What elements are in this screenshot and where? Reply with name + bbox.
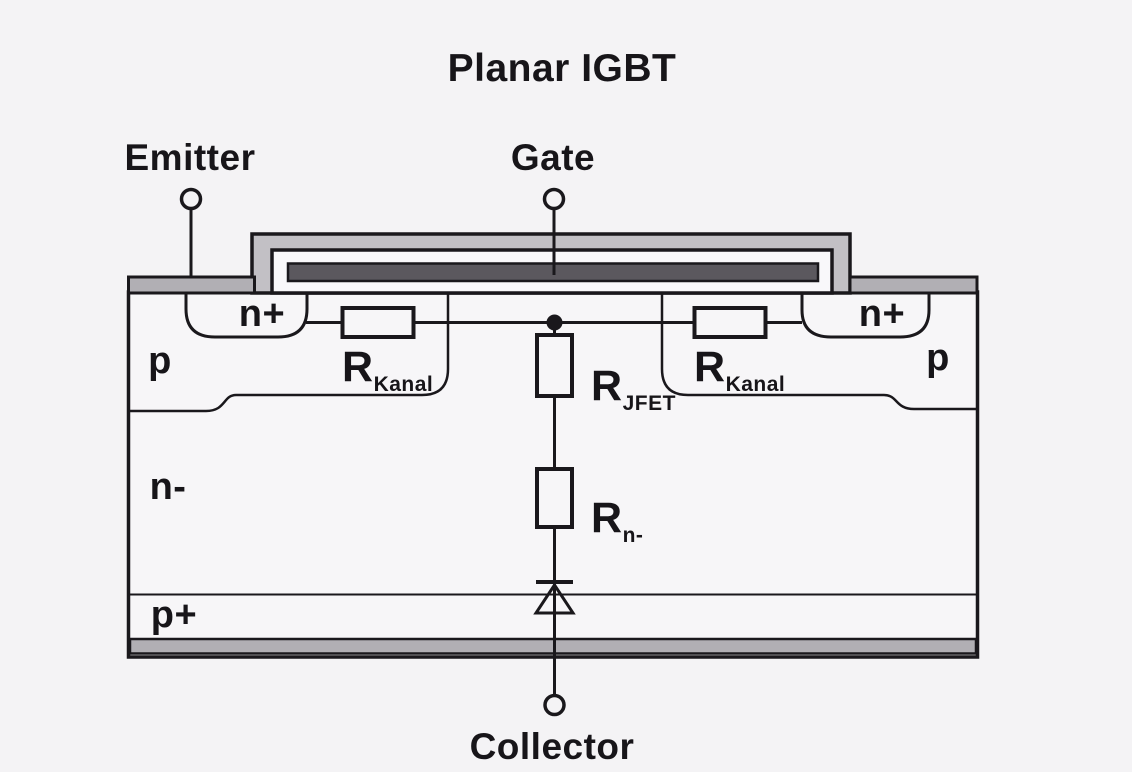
resistor-box-kanal-left <box>343 308 414 337</box>
region-label-p-right: p <box>926 337 950 379</box>
gate-terminal-circle <box>545 190 564 209</box>
emitter-terminal-circle <box>182 190 201 209</box>
region-label-p-plus: p+ <box>151 594 197 636</box>
junction-node-dot <box>547 315 563 331</box>
region-label-n-plus-right: n+ <box>859 293 905 335</box>
emitter-metal-bar-right <box>850 277 977 293</box>
region-label-n-drift: n- <box>150 466 187 508</box>
emitter-label: Emitter <box>125 137 256 178</box>
resistor-box-kanal-right <box>695 308 766 337</box>
collector-label: Collector <box>470 726 635 767</box>
collector-terminal-circle <box>545 696 564 715</box>
emitter-metal-bar-left <box>129 277 255 293</box>
resistor-box-n-drift <box>537 469 572 527</box>
gate-label: Gate <box>511 137 595 178</box>
diagram-title: Planar IGBT <box>448 47 677 90</box>
igbt-cross-section-diagram: Planar IGBT Emitter Gate Collector n+ n+… <box>0 0 1132 772</box>
region-label-n-plus-left: n+ <box>239 293 285 335</box>
diagram-canvas: Planar IGBT Emitter Gate Collector n+ n+… <box>0 0 1132 772</box>
resistor-box-jfet <box>537 335 572 396</box>
region-label-p-left: p <box>148 340 172 382</box>
